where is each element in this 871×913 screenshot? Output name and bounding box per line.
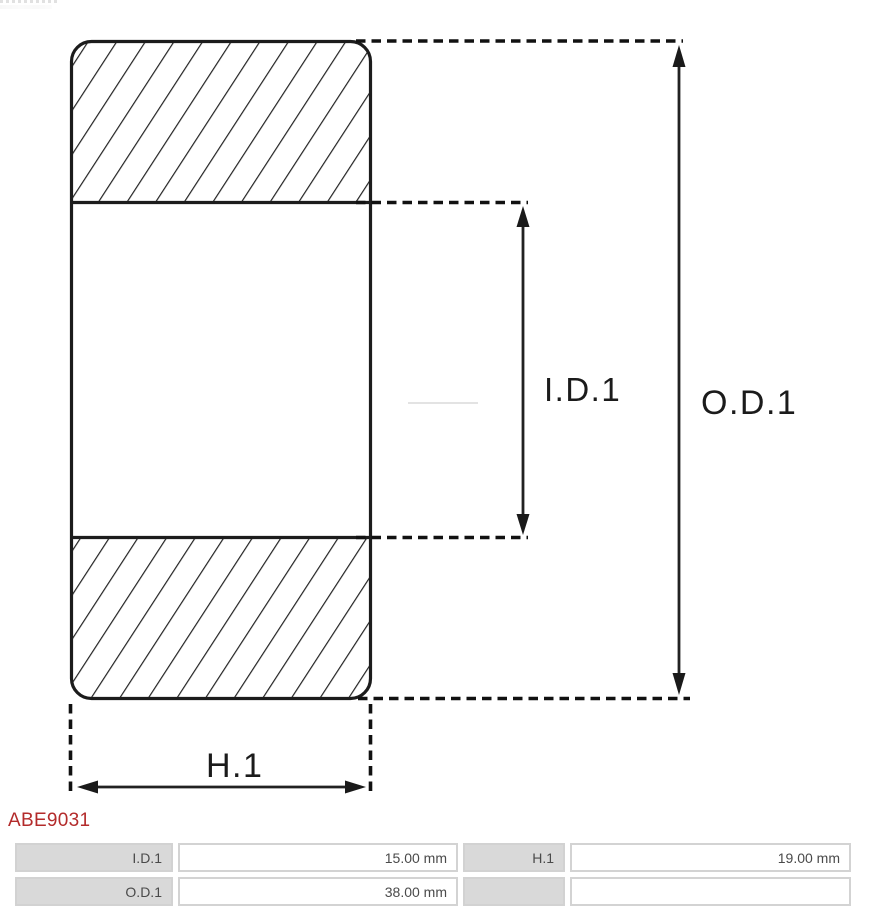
arrowhead-up-icon xyxy=(517,206,530,227)
bearing-body xyxy=(72,42,371,699)
id-dimension-arrow: I.D.1 xyxy=(517,206,622,535)
spec-label-cell: I.D.1 xyxy=(15,843,173,872)
spec-value-cell: 38.00 mm xyxy=(178,877,458,906)
spec-label-cell: O.D.1 xyxy=(15,877,173,906)
dimension-spec-table: I.D.1 15.00 mm H.1 19.00 mm O.D.1 38.00 … xyxy=(10,838,856,911)
spec-value-cell: 19.00 mm xyxy=(570,843,851,872)
spec-table-row: I.D.1 15.00 mm H.1 19.00 mm xyxy=(15,843,851,872)
product-dimension-page: I.D.1 O.D.1 H.1 ABE9031 I.D.1 15.00 xyxy=(0,0,871,913)
arrowhead-right-icon xyxy=(345,781,366,794)
h-dimension-arrow: H.1 xyxy=(77,747,366,794)
spec-value-cell xyxy=(570,877,851,906)
spec-label-cell xyxy=(463,877,565,906)
spec-table-row: O.D.1 38.00 mm xyxy=(15,877,851,906)
od-dimension-label: O.D.1 xyxy=(701,384,797,422)
bottom-hatched-band xyxy=(72,538,371,699)
spec-label-cell: H.1 xyxy=(463,843,565,872)
top-hatched-band xyxy=(72,42,371,203)
arrowhead-left-icon xyxy=(77,781,98,794)
arrowhead-down-icon xyxy=(517,514,530,535)
od-dimension-arrow: O.D.1 xyxy=(673,45,798,695)
arrowhead-down-icon xyxy=(673,673,686,695)
spec-value-cell: 15.00 mm xyxy=(178,843,458,872)
h-dimension-label: H.1 xyxy=(206,747,263,785)
bearing-diagram: I.D.1 O.D.1 H.1 xyxy=(0,0,871,805)
arrowhead-up-icon xyxy=(673,45,686,67)
bearing-diagram-container: I.D.1 O.D.1 H.1 xyxy=(0,0,871,810)
id-dimension-label: I.D.1 xyxy=(544,371,621,408)
part-number-link[interactable]: ABE9031 xyxy=(8,810,90,832)
